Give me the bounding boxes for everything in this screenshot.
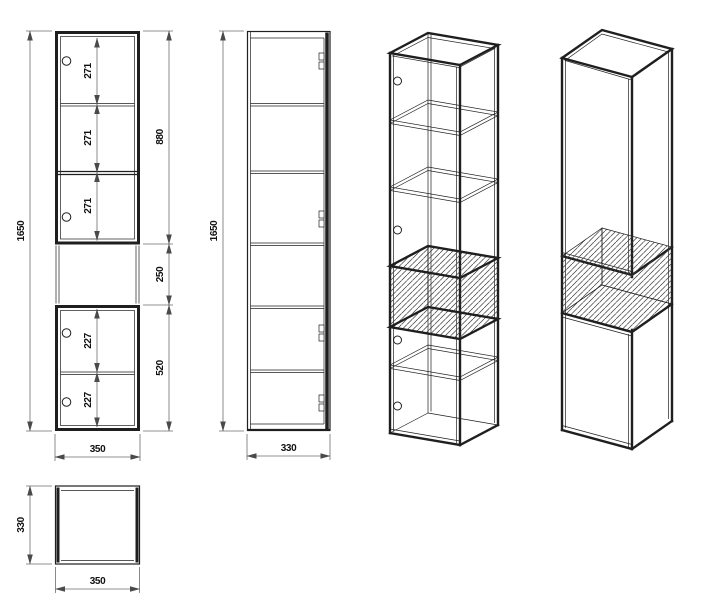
iso-closed-view bbox=[562, 30, 672, 449]
dim-label-side-height: 1650 bbox=[209, 220, 220, 241]
handle-hole bbox=[62, 213, 71, 222]
handle-hole bbox=[394, 336, 402, 344]
dim-label-front-shelf-3: 271 bbox=[83, 197, 94, 213]
dim-front-width: 350 bbox=[55, 434, 140, 461]
dim-label-side-depth: 330 bbox=[281, 443, 297, 454]
front-lower-door-frame bbox=[57, 307, 139, 430]
dim-label-front-shelf-2: 271 bbox=[83, 129, 94, 145]
iso2-top-face bbox=[562, 30, 672, 77]
dim-label-front-height: 1650 bbox=[16, 220, 27, 241]
dim-side-depth: 330 bbox=[247, 434, 330, 460]
dim-label-front-door-1: 227 bbox=[83, 332, 94, 348]
side-outline bbox=[248, 32, 331, 431]
side-hinges bbox=[319, 53, 324, 411]
top-view-body bbox=[56, 486, 140, 564]
top-view: 330 350 bbox=[16, 486, 140, 593]
iso2-niche bbox=[562, 228, 672, 336]
front-lower-door-panel bbox=[61, 311, 135, 426]
dim-label-front-top-section: 880 bbox=[155, 128, 166, 144]
dim-top-width: 350 bbox=[56, 567, 140, 593]
front-view: 1650 271 271 271 227 227 880 bbox=[16, 31, 173, 461]
drawing-canvas: 1650 271 271 271 227 227 880 bbox=[0, 0, 707, 600]
handle-hole bbox=[62, 398, 71, 407]
side-view: 1650 330 bbox=[209, 31, 330, 460]
iso1-niche bbox=[390, 246, 498, 339]
front-view-body bbox=[56, 33, 139, 430]
dim-label-top-width: 350 bbox=[90, 576, 106, 587]
top-outline bbox=[56, 486, 140, 564]
dim-label-front-shelf-1: 271 bbox=[83, 62, 94, 78]
dim-label-front-bottom-section: 520 bbox=[155, 359, 166, 375]
cabinet-technical-drawing: 1650 271 271 271 227 227 880 bbox=[0, 0, 707, 600]
handle-hole bbox=[62, 57, 71, 66]
iso1-glass-shelves bbox=[390, 100, 498, 381]
dim-top-depth: 330 bbox=[16, 486, 52, 564]
dim-side-height: 1650 bbox=[209, 31, 244, 431]
dim-label-top-depth: 330 bbox=[16, 516, 27, 532]
handle-hole bbox=[394, 77, 402, 85]
iso-wireframe-view bbox=[390, 33, 498, 445]
side-view-body bbox=[247, 32, 330, 431]
dim-front-doors: 227 227 bbox=[83, 309, 97, 427]
dim-front-shelves: 271 271 271 bbox=[83, 38, 97, 241]
dim-front-height: 1650 bbox=[16, 31, 52, 431]
front-upper-door-panel bbox=[61, 37, 135, 240]
handle-hole bbox=[394, 402, 402, 410]
handle-hole bbox=[62, 329, 71, 338]
dim-label-front-door-2: 227 bbox=[83, 391, 94, 407]
dim-front-sections: 880 250 520 bbox=[143, 31, 173, 431]
dim-label-front-width: 350 bbox=[90, 444, 106, 455]
side-shelf-lines bbox=[251, 104, 325, 373]
dim-label-front-niche: 250 bbox=[155, 266, 166, 282]
handle-hole bbox=[394, 226, 402, 234]
